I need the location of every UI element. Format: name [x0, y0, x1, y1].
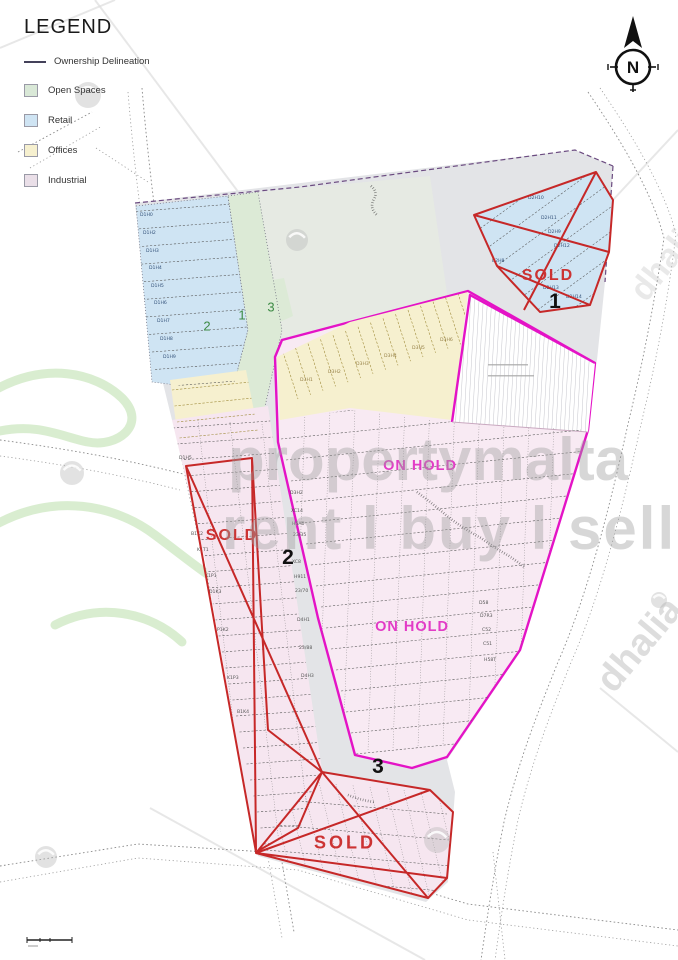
zone2-sold-label: SOLD: [206, 527, 258, 545]
svg-text:D1H6: D1H6: [154, 300, 167, 306]
svg-text:23/88: 23/88: [299, 645, 312, 651]
open-space-number-1: 1: [238, 308, 245, 323]
svg-text:D7R3: D7R3: [480, 613, 493, 619]
svg-text:C52: C52: [482, 627, 491, 633]
zone3-number: 3: [372, 755, 384, 779]
svg-text:D2H9: D2H9: [548, 229, 561, 235]
svg-text:D4H1: D4H1: [297, 617, 310, 623]
svg-text:23/70: 23/70: [295, 588, 308, 594]
svg-text:D1H2: D1H2: [143, 230, 156, 236]
on-hold-label-lower: ON HOLD: [375, 619, 449, 635]
open-spaces-swatch: [24, 84, 38, 97]
offices-swatch: [24, 144, 38, 157]
svg-text:H5A0: H5A0: [292, 521, 305, 527]
svg-text:K1P3: K1P3: [227, 675, 239, 681]
svg-text:D1H0: D1H0: [140, 212, 153, 218]
svg-text:D1H3: D1H3: [146, 248, 159, 254]
legend-item-label: Industrial: [48, 175, 87, 186]
compass-n-label: N: [627, 58, 639, 77]
svg-text:D1H5: D1H5: [151, 283, 164, 289]
svg-text:D3H5: D3H5: [412, 345, 425, 351]
legend-title: LEGEND: [24, 16, 150, 39]
zone3-sold-label: SOLD: [314, 833, 376, 854]
site-plan-page: D1H0D1H2D1H3D1H4D1H5D1H6D1H7D1H8D1H9D2H1…: [0, 0, 678, 960]
legend-item-label: Offices: [48, 145, 77, 156]
svg-text:D3H2: D3H2: [290, 490, 303, 496]
svg-text:D3H2: D3H2: [328, 369, 341, 375]
hatched-area-caption-line: [488, 375, 534, 377]
svg-text:23/35: 23/35: [293, 532, 306, 538]
svg-text:D1K3: D1K3: [209, 589, 221, 595]
open-space-number-3: 3: [267, 300, 274, 315]
legend-item-label: Ownership Delineation: [54, 56, 150, 67]
svg-text:D1H9: D1H9: [163, 354, 176, 360]
north-arrow-icon: [624, 16, 642, 48]
legend-item-open-spaces: Open Spaces: [24, 84, 150, 97]
north-arrow-compass: N: [596, 10, 672, 106]
svg-text:H911: H911: [294, 574, 306, 580]
svg-text:D3H4: D3H4: [384, 353, 397, 359]
zone1-sold-label: SOLD: [522, 267, 574, 285]
svg-text:D58: D58: [479, 600, 488, 606]
hatched-area-caption-line: [488, 364, 528, 366]
legend-item-offices: Offices: [24, 144, 150, 157]
svg-text:D3H3: D3H3: [356, 361, 369, 367]
legend-item-retail: Retail: [24, 114, 150, 127]
legend: LEGEND Ownership Delineation Open Spaces…: [24, 16, 150, 187]
on-hold-label-upper: ON HOLD: [383, 458, 457, 474]
industrial-swatch: [24, 174, 38, 187]
legend-item-ownership: Ownership Delineation: [24, 56, 150, 67]
legend-item-label: Retail: [48, 115, 72, 126]
svg-text:P1K2: P1K2: [217, 627, 229, 633]
svg-text:D1H8: D1H8: [160, 336, 173, 342]
zone1-number: 1: [549, 290, 561, 314]
legend-item-industrial: Industrial: [24, 174, 150, 187]
zone2-number: 2: [282, 546, 294, 570]
legend-item-label: Open Spaces: [48, 85, 106, 96]
svg-text:D1H5: D1H5: [179, 455, 192, 461]
svg-text:D1H7: D1H7: [157, 318, 170, 324]
ownership-line-symbol: [24, 61, 46, 63]
svg-text:B1K4: B1K4: [237, 709, 249, 715]
svg-text:D1H4: D1H4: [149, 265, 162, 271]
svg-text:H58T: H58T: [484, 657, 496, 663]
scale-bar: [27, 937, 72, 946]
open-space-number-2: 2: [203, 319, 210, 334]
retail-swatch: [24, 114, 38, 127]
svg-text:D3H6: D3H6: [440, 337, 453, 343]
retail-zone: [136, 196, 248, 392]
svg-text:D4H3: D4H3: [301, 673, 314, 679]
svg-text:D3H1: D3H1: [300, 377, 313, 383]
svg-text:K1T1: K1T1: [197, 547, 209, 553]
svg-text:C51: C51: [483, 641, 492, 647]
svg-text:D2H11: D2H11: [541, 215, 557, 221]
svg-text:XC14: XC14: [291, 508, 303, 514]
